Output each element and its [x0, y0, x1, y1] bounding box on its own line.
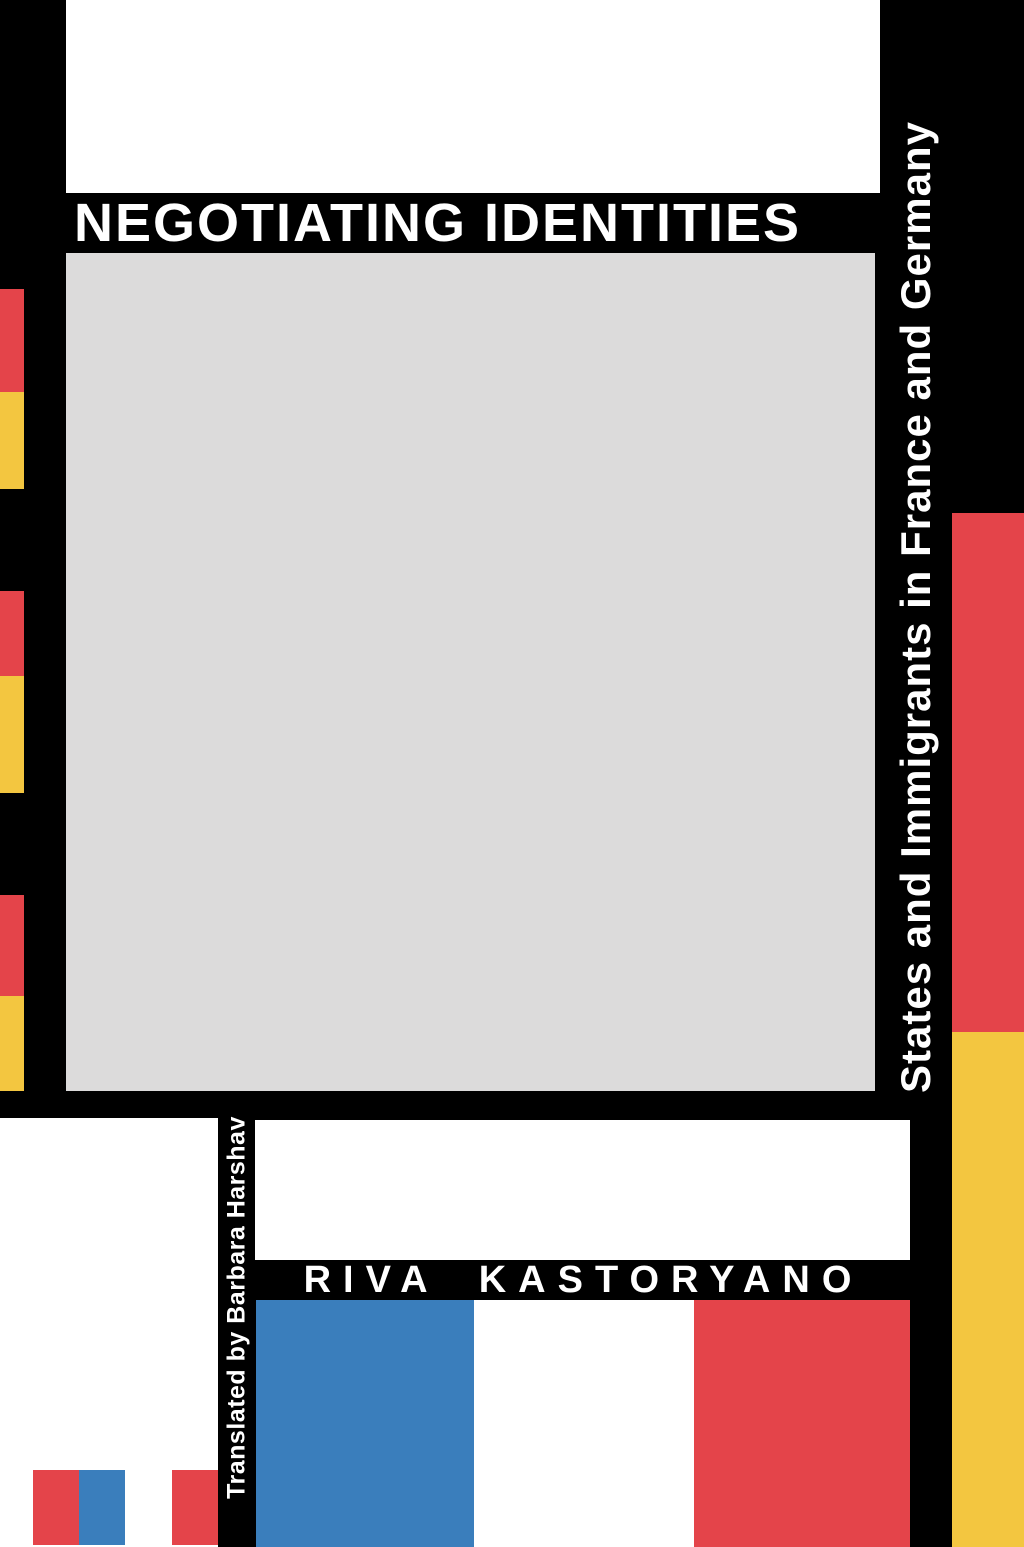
author-white-panel — [255, 1120, 910, 1260]
title-band: NEGOTIATING IDENTITIES — [66, 193, 880, 253]
right-yellow-strip — [952, 1032, 1024, 1547]
french-flag-white-panel — [474, 1300, 694, 1547]
left-red-block-1 — [0, 289, 24, 392]
author-band: RIVA KASTORYANO — [255, 1260, 912, 1300]
top-white-panel — [66, 0, 880, 193]
small-blue-square — [79, 1470, 125, 1545]
book-subtitle-vertical: States and Immigrants in France and Germ… — [893, 111, 939, 1103]
book-title: NEGOTIATING IDENTITIES — [66, 196, 801, 250]
left-yellow-block-1 — [0, 392, 24, 489]
translator-credit-vertical: Translated by Barbara Harshav — [219, 1125, 256, 1491]
right-red-strip — [952, 513, 1024, 1032]
left-red-block-3 — [0, 895, 24, 996]
gray-center-panel — [66, 253, 875, 1091]
left-yellow-block-2 — [0, 676, 24, 793]
left-red-block-2 — [0, 591, 24, 676]
left-yellow-block-3 — [0, 996, 24, 1091]
book-cover: NEGOTIATING IDENTITIES States and Immigr… — [0, 0, 1024, 1547]
small-red-square-1 — [33, 1470, 79, 1545]
french-flag-blue-panel — [256, 1300, 474, 1547]
author-name: RIVA KASTORYANO — [304, 1261, 864, 1299]
french-flag-red-panel — [694, 1300, 910, 1547]
small-red-square-2 — [172, 1470, 218, 1545]
